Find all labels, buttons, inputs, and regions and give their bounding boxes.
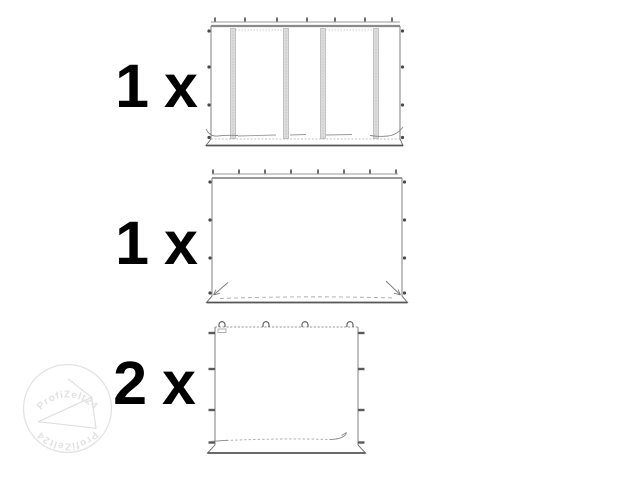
- watermark-stamp-svg: ProfiZelt24 ProfiZelt24: [20, 361, 115, 456]
- plain-sidewall-drawing: [200, 167, 412, 309]
- quantity-label-1: 1 x: [96, 56, 216, 117]
- tent-parts-diagram: 1 x: [0, 0, 639, 479]
- window-strips: [231, 29, 379, 139]
- top-strap-ticks: [215, 18, 392, 23]
- bottom-skirt: [207, 281, 408, 303]
- top-hanging-loops: [219, 322, 353, 327]
- panel-outline: [211, 26, 400, 139]
- side-attachment-dots: [208, 180, 406, 294]
- side-attachment-tabs: [209, 332, 365, 444]
- panel-outline: [212, 178, 402, 296]
- panel-outline: [215, 327, 358, 445]
- window-sidewall-svg: [202, 13, 406, 155]
- end-wall-svg: [198, 317, 374, 467]
- corner-label-tag: [218, 329, 226, 333]
- quantity-label-2: 1 x: [96, 213, 216, 274]
- end-wall-drawing: [198, 317, 374, 467]
- window-sidewall-drawing: [202, 13, 406, 155]
- top-strap-ticks: [213, 170, 396, 175]
- watermark-text-bottom: ProfiZelt24: [35, 429, 100, 451]
- window-stitching: [233, 30, 376, 137]
- bottom-skirt: [208, 433, 366, 454]
- brand-watermark: ProfiZelt24 ProfiZelt24: [20, 361, 115, 456]
- plain-sidewall-svg: [200, 167, 412, 309]
